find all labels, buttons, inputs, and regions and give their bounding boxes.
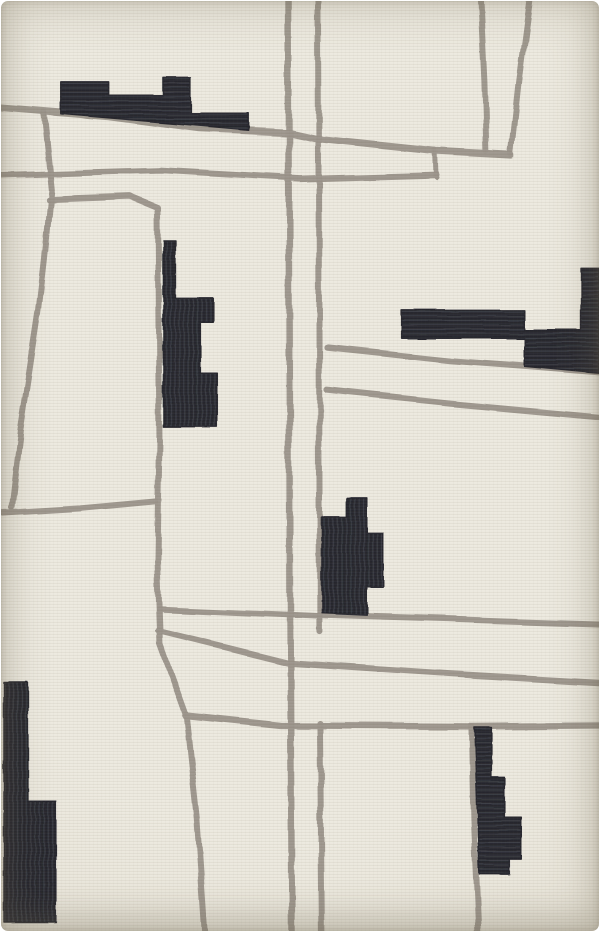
- line-center-vertical-a: [288, 1, 292, 931]
- rug-artwork: [1, 1, 599, 931]
- line-center-vertical-b-lower: [320, 723, 322, 931]
- rug-photo: [0, 0, 600, 932]
- line-funnel-right: [511, 1, 530, 155]
- line-funnel-left: [480, 1, 486, 152]
- line-lower-horizontal-1: [159, 609, 599, 625]
- line-center-vertical-b-upper: [318, 1, 320, 632]
- line-upper-horizontal: [1, 171, 437, 179]
- block-left-stepped: [163, 240, 217, 427]
- line-right-slant-lower: [327, 390, 599, 417]
- line-lower-horizontal-2: [158, 631, 599, 683]
- line-upper-connector: [436, 151, 437, 177]
- rug-canvas: [1, 1, 599, 931]
- block-top-left-skyline: [61, 78, 248, 130]
- block-center-column: [322, 498, 383, 615]
- line-lower-horizontal-3: [185, 715, 599, 726]
- block-bottom-left-corner: [4, 683, 56, 922]
- charcoal-block-group: [4, 78, 599, 922]
- line-left-horizontal: [1, 502, 155, 514]
- tufted-line-group: [1, 1, 599, 931]
- block-bottom-right-steps: [474, 727, 521, 874]
